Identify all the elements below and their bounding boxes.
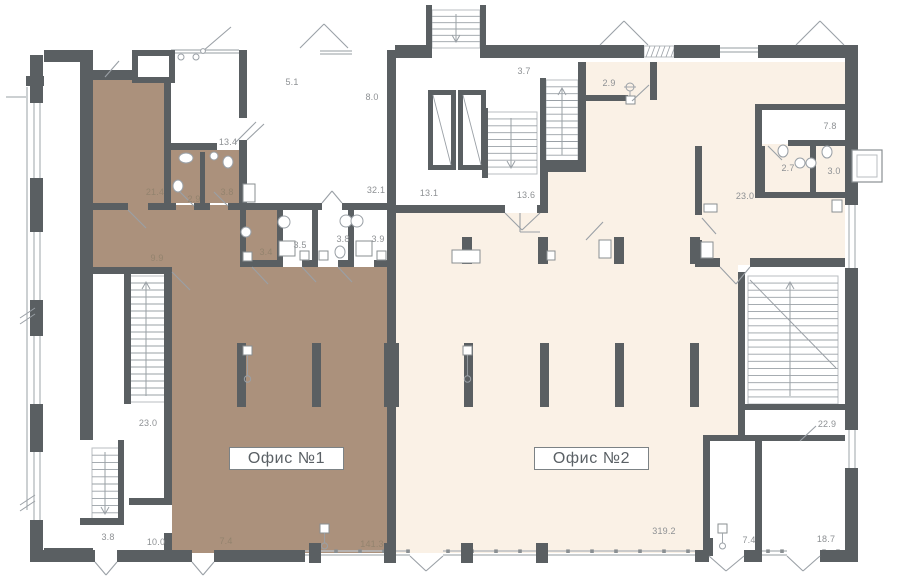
office-2-label: Офис №2 — [534, 447, 649, 470]
floor-plan-drawing — [0, 0, 900, 583]
office-1-label: Офис №1 — [229, 447, 344, 470]
floor-plan: 5.18.03.72.97.813.421.42.93.82.73.032.11… — [0, 0, 900, 583]
